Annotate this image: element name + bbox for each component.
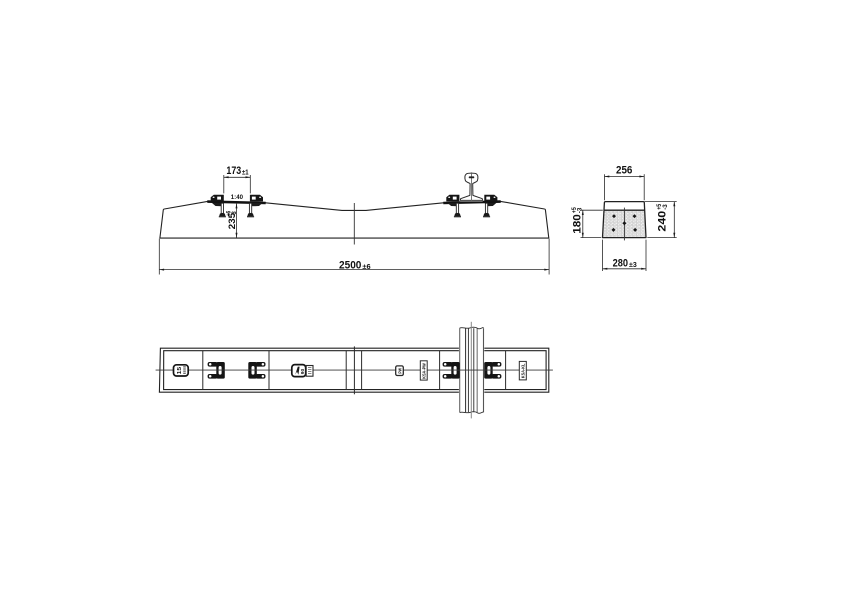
svg-text:±1: ±1 [242,169,249,176]
svg-text:256: 256 [616,165,632,177]
svg-text:15: 15 [177,367,183,375]
svg-text:KSA-KL: KSA-KL [521,363,526,378]
svg-text:2500: 2500 [339,260,361,272]
svg-text:PW: PW [397,367,402,373]
svg-text:-3: -3 [662,204,669,210]
svg-text:180: 180 [571,214,583,234]
svg-text:173: 173 [226,165,241,177]
svg-text:90: 90 [300,368,305,374]
svg-text:-3: -3 [232,211,238,217]
svg-text:1:40: 1:40 [231,194,244,201]
svg-text:±6: ±6 [362,264,370,271]
svg-text:KSA-PW: KSA-PW [422,362,427,378]
svg-text:-3: -3 [577,207,584,213]
svg-text:240: 240 [657,211,669,232]
svg-text:±3: ±3 [629,262,637,269]
svg-text:280: 280 [613,258,628,270]
